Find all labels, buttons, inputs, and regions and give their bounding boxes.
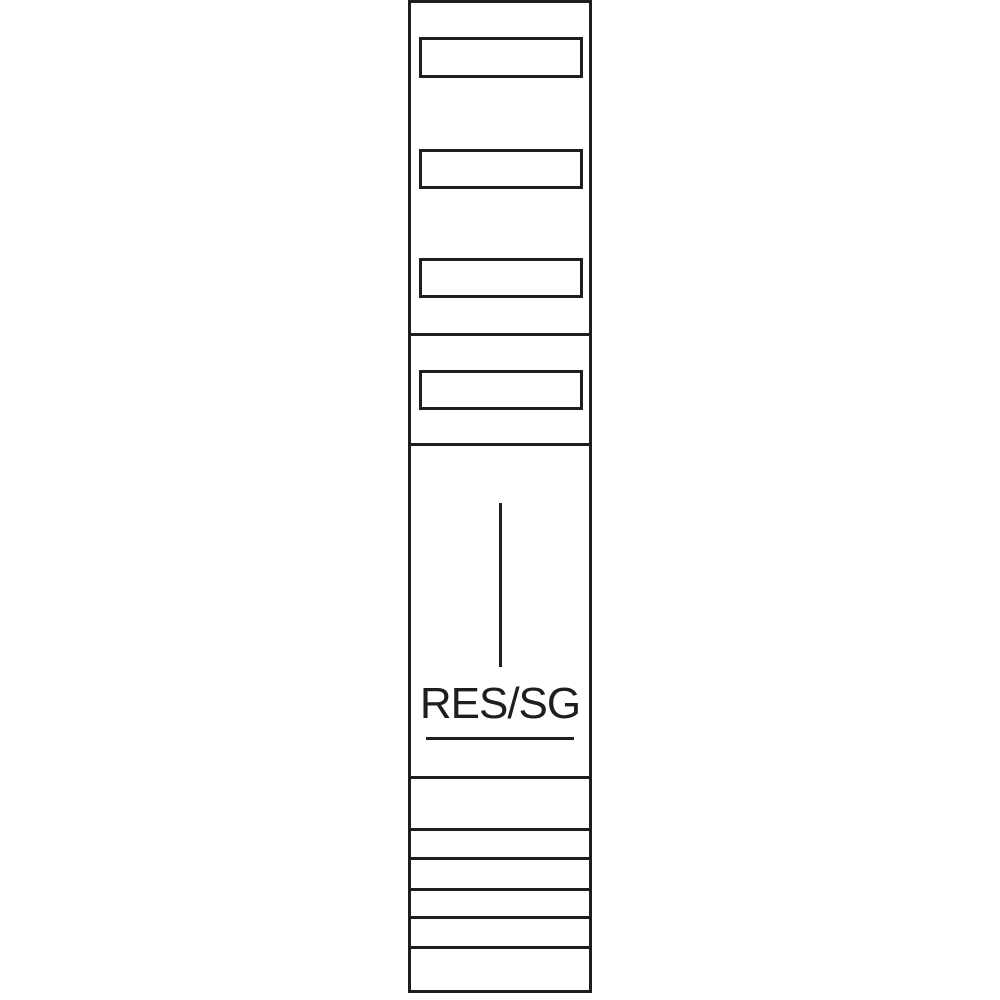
bottom-rail-line-4 xyxy=(411,916,589,919)
section-divider-1 xyxy=(411,333,589,336)
label-window-4 xyxy=(419,370,583,410)
bottom-rail-line-2 xyxy=(411,857,589,860)
label-window-3 xyxy=(419,258,583,298)
bottom-rail-line-1 xyxy=(411,828,589,831)
label-underline xyxy=(426,737,574,740)
product-image: RES/SG xyxy=(0,0,1000,1000)
vertical-marker-line xyxy=(499,503,502,667)
section-divider-2 xyxy=(411,443,589,446)
panel-label: RES/SG xyxy=(411,679,589,729)
label-window-2 xyxy=(419,149,583,189)
panel-outline: RES/SG xyxy=(408,0,592,993)
label-window-1 xyxy=(419,37,583,78)
section-divider-3 xyxy=(411,776,589,779)
bottom-rail-line-3 xyxy=(411,888,589,891)
bottom-rail-line-5 xyxy=(411,946,589,949)
